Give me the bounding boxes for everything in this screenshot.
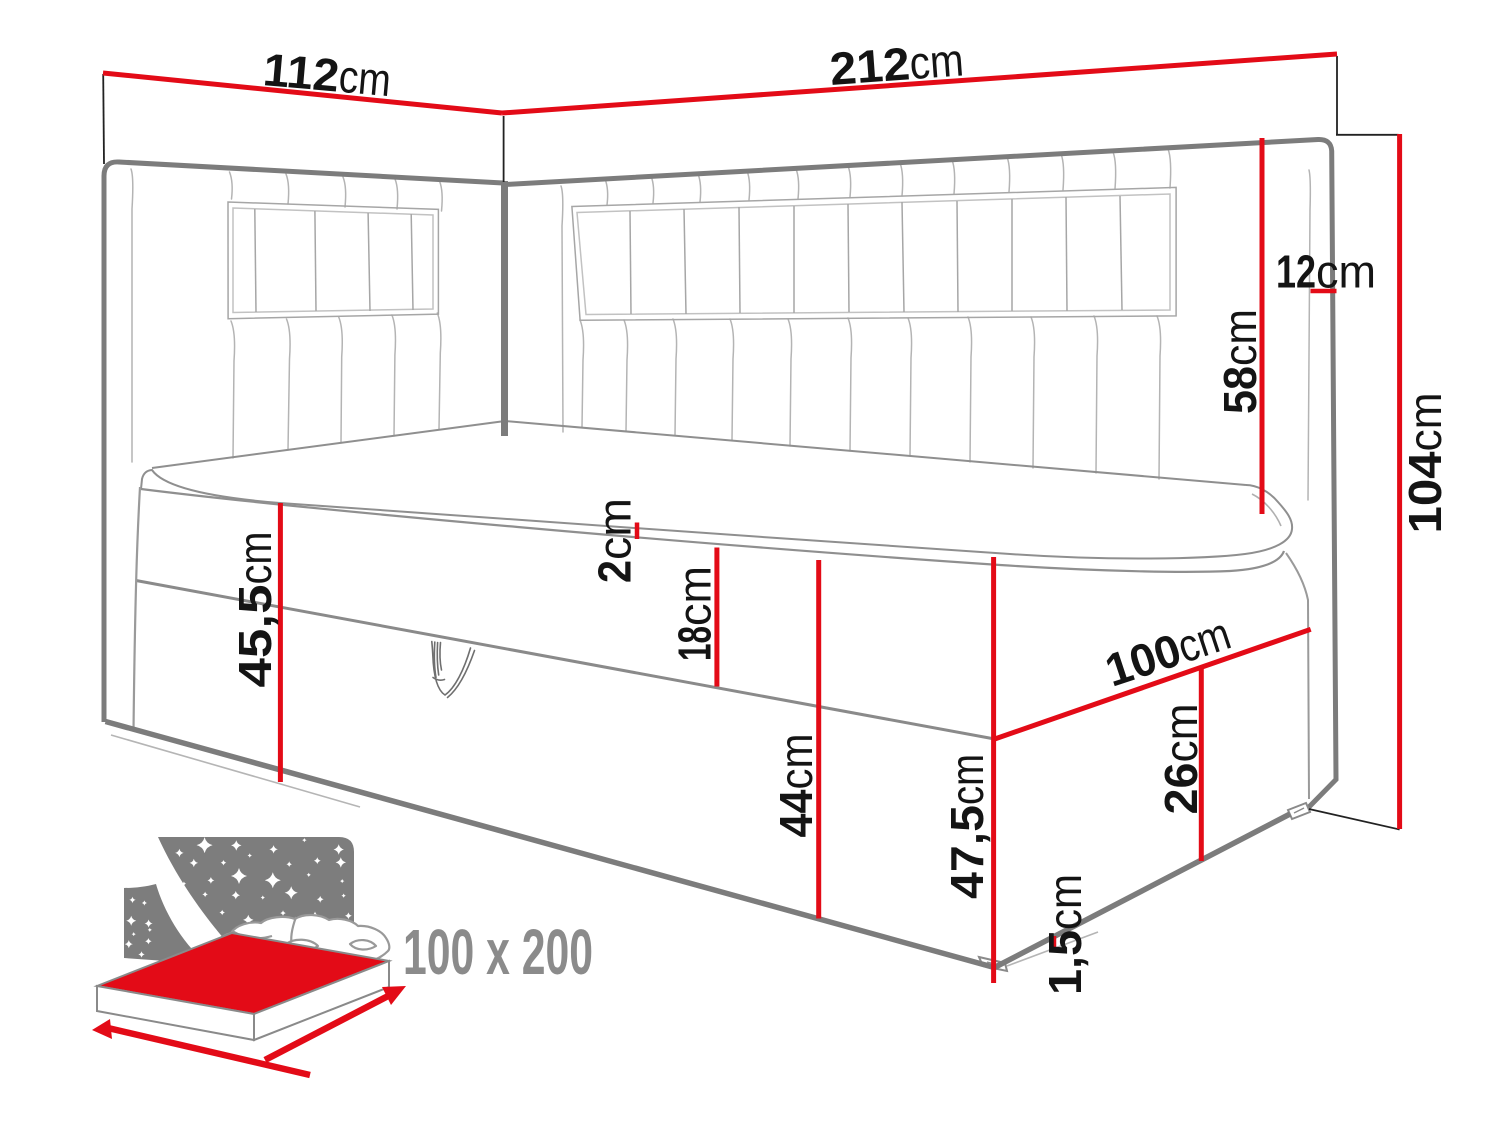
- svg-text:18cm: 18cm: [669, 566, 721, 661]
- svg-text:212cm: 212cm: [828, 33, 965, 95]
- svg-text:104cm: 104cm: [1399, 393, 1451, 534]
- svg-text:47,5cm: 47,5cm: [941, 754, 993, 899]
- svg-text:44cm: 44cm: [770, 734, 822, 838]
- svg-text:58cm: 58cm: [1214, 309, 1266, 414]
- svg-text:12cm: 12cm: [1276, 246, 1376, 298]
- svg-text:26cm: 26cm: [1155, 704, 1207, 815]
- svg-text:2cm: 2cm: [589, 498, 641, 583]
- svg-text:45,5cm: 45,5cm: [229, 532, 281, 688]
- svg-text:112cm: 112cm: [261, 43, 393, 106]
- svg-text:1,5cm: 1,5cm: [1039, 874, 1091, 995]
- svg-text:100 x 200: 100 x 200: [403, 916, 593, 988]
